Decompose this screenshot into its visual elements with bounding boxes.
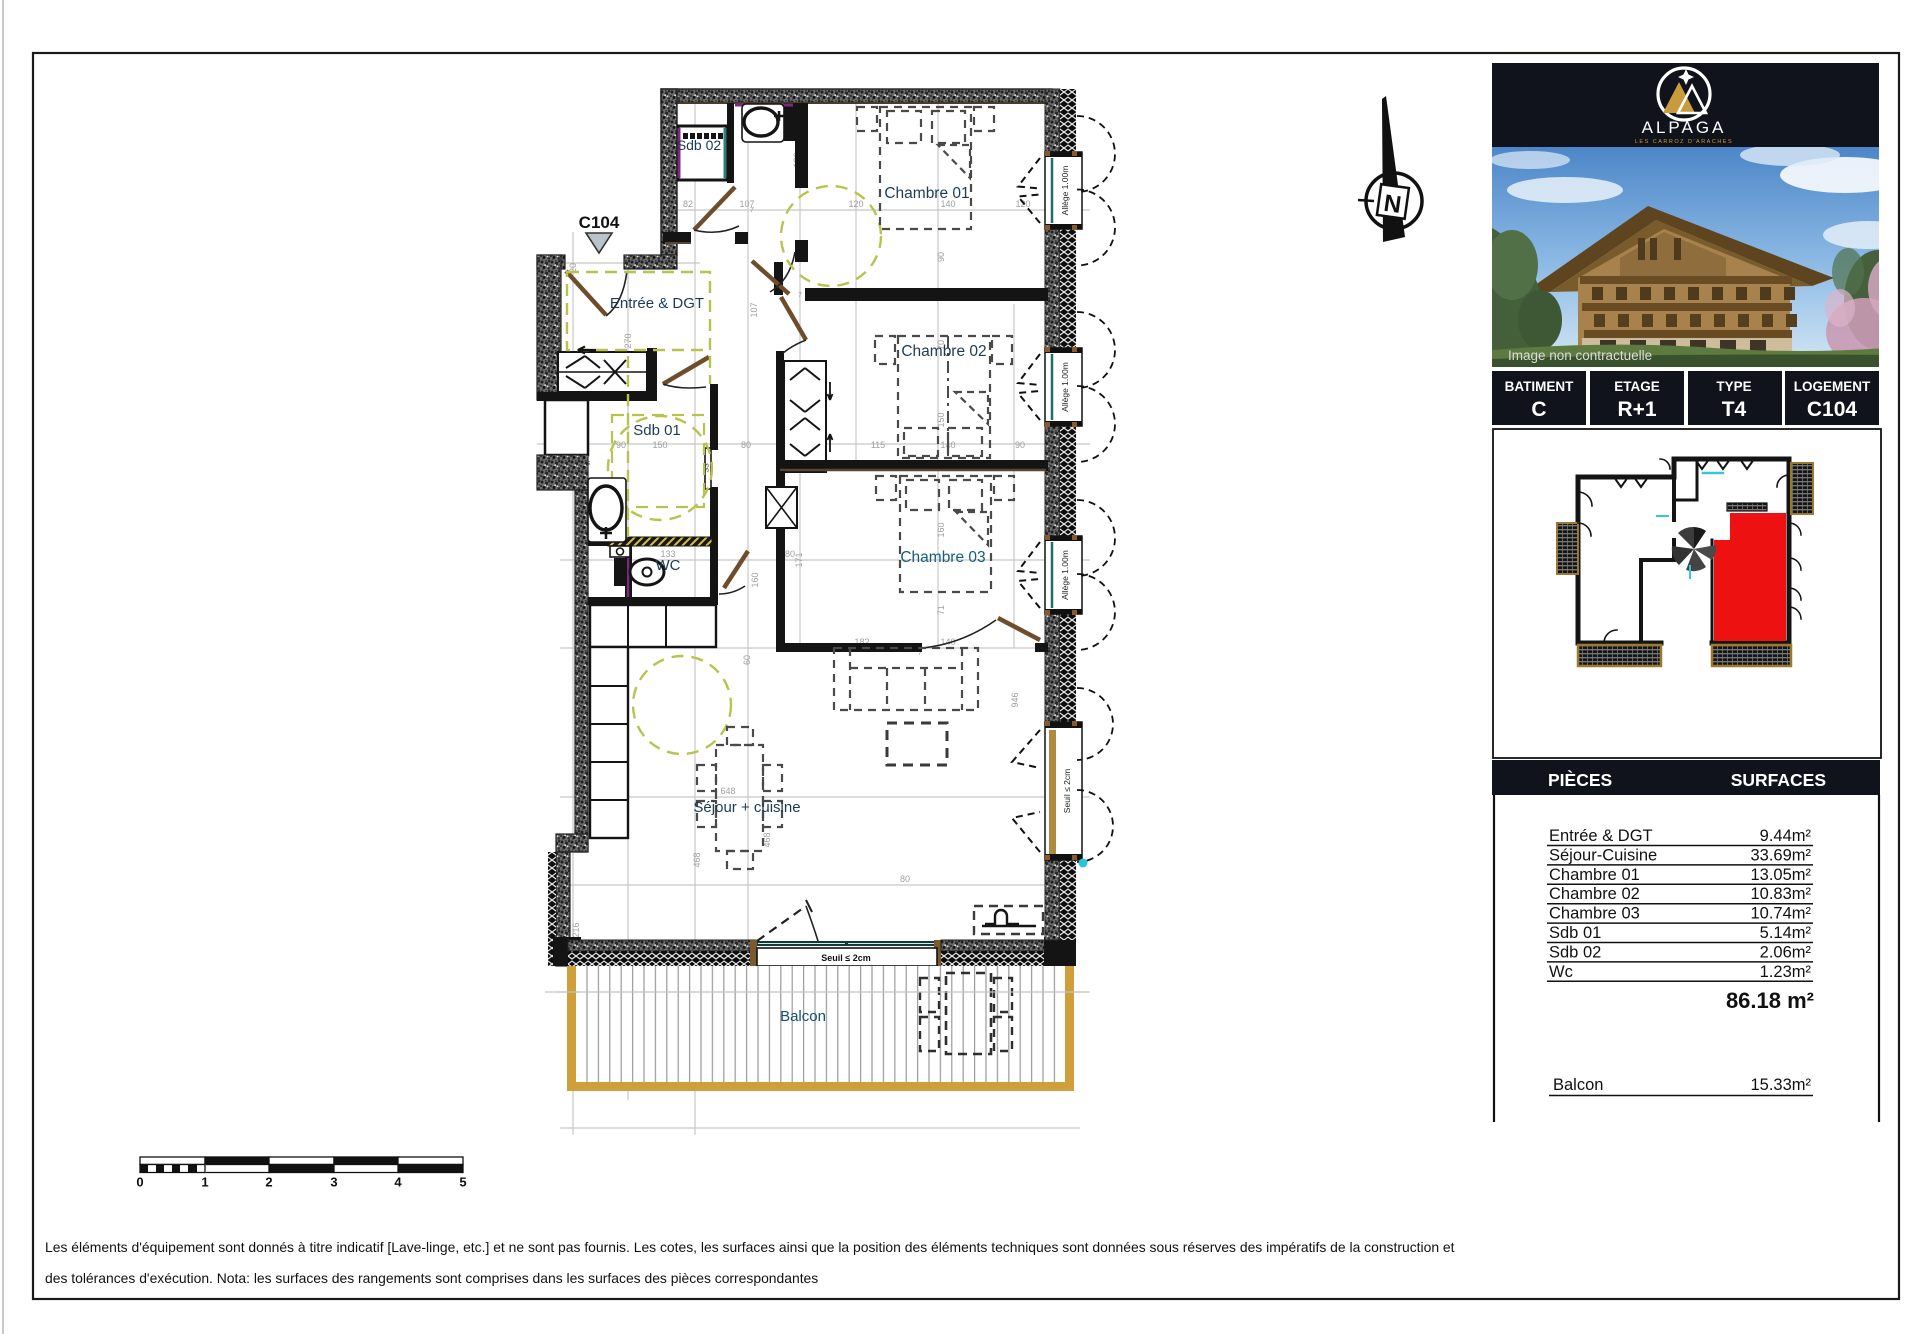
svg-text:R+1: R+1 bbox=[1617, 398, 1656, 421]
svg-text:ETAGE: ETAGE bbox=[1614, 379, 1660, 394]
svg-text:7: 7 bbox=[798, 290, 802, 299]
svg-text:90: 90 bbox=[936, 252, 946, 262]
svg-text:Chambre 02: Chambre 02 bbox=[901, 343, 986, 360]
svg-text:10.74m²: 10.74m² bbox=[1750, 905, 1811, 923]
svg-text:946: 946 bbox=[1010, 692, 1020, 707]
svg-text:LES CARROZ D'ARACHES: LES CARROZ D'ARACHES bbox=[1635, 139, 1733, 145]
svg-text:3: 3 bbox=[330, 1175, 337, 1190]
svg-text:Sdb 01: Sdb 01 bbox=[633, 422, 681, 439]
svg-text:15.33m²: 15.33m² bbox=[1750, 1076, 1811, 1094]
svg-text:4: 4 bbox=[394, 1175, 402, 1190]
svg-text:C104: C104 bbox=[579, 213, 620, 232]
svg-text:des tolérances d'exécution. No: des tolérances d'exécution. Nota: les su… bbox=[45, 1270, 818, 1286]
svg-text:150: 150 bbox=[652, 440, 667, 450]
svg-text:Entrée & DGT: Entrée & DGT bbox=[1549, 827, 1653, 845]
svg-text:468: 468 bbox=[692, 852, 702, 867]
svg-text:Wc: Wc bbox=[1549, 963, 1573, 981]
svg-text:Chambre 01: Chambre 01 bbox=[884, 185, 969, 202]
svg-text:Chambre 03: Chambre 03 bbox=[1549, 905, 1640, 923]
svg-text:Entrée & DGT: Entrée & DGT bbox=[610, 295, 704, 312]
svg-text:107: 107 bbox=[749, 302, 759, 317]
svg-text:150: 150 bbox=[936, 412, 946, 427]
svg-text:160: 160 bbox=[750, 572, 760, 587]
svg-text:10.83m²: 10.83m² bbox=[1750, 885, 1811, 903]
svg-text:Sdb 02: Sdb 02 bbox=[677, 137, 722, 153]
svg-text:PIÈCES: PIÈCES bbox=[1548, 769, 1612, 790]
svg-text:216: 216 bbox=[571, 922, 581, 937]
svg-text:2: 2 bbox=[265, 1175, 272, 1190]
svg-text:Balcon: Balcon bbox=[1553, 1076, 1603, 1094]
svg-text:82: 82 bbox=[683, 199, 693, 209]
svg-text:86.18 m²: 86.18 m² bbox=[1726, 988, 1814, 1013]
svg-text:ALPAGA: ALPAGA bbox=[1642, 118, 1727, 137]
svg-text:Allège 1.00m: Allège 1.00m bbox=[1060, 550, 1070, 600]
svg-text:115: 115 bbox=[871, 440, 885, 450]
svg-text:7: 7 bbox=[750, 205, 754, 214]
svg-text:120: 120 bbox=[848, 199, 863, 209]
svg-text:Balcon: Balcon bbox=[780, 1008, 826, 1025]
svg-text:Image non contractuelle: Image non contractuelle bbox=[1508, 348, 1652, 363]
svg-text:BATIMENT: BATIMENT bbox=[1505, 379, 1574, 394]
svg-text:Séjour-Cuisine: Séjour-Cuisine bbox=[1549, 846, 1657, 864]
svg-text:160: 160 bbox=[936, 522, 946, 537]
svg-text:SURFACES: SURFACES bbox=[1731, 770, 1826, 790]
svg-text:Allège 1.00m: Allège 1.00m bbox=[1060, 166, 1070, 216]
svg-text:90: 90 bbox=[616, 440, 626, 450]
svg-text:9.44m²: 9.44m² bbox=[1760, 827, 1812, 845]
svg-text:90: 90 bbox=[1015, 440, 1025, 450]
svg-text:2.06m²: 2.06m² bbox=[1760, 943, 1812, 961]
svg-text:71: 71 bbox=[936, 605, 946, 615]
svg-text:C: C bbox=[1531, 398, 1546, 421]
svg-text:Chambre 01: Chambre 01 bbox=[1549, 866, 1640, 884]
svg-text:5: 5 bbox=[459, 1175, 466, 1190]
svg-text:13.05m²: 13.05m² bbox=[1750, 866, 1811, 884]
svg-text:1: 1 bbox=[201, 1175, 208, 1190]
svg-text:Sdb 01: Sdb 01 bbox=[1549, 924, 1601, 942]
svg-text:LOGEMENT: LOGEMENT bbox=[1794, 379, 1871, 394]
svg-text:Allège 1.00m: Allège 1.00m bbox=[1060, 362, 1070, 412]
svg-text:1.23m²: 1.23m² bbox=[1760, 963, 1812, 981]
svg-text:Sdb 02: Sdb 02 bbox=[1549, 943, 1601, 961]
svg-text:TYPE: TYPE bbox=[1716, 379, 1751, 394]
svg-text:Seuil ≤ 2cm: Seuil ≤ 2cm bbox=[821, 953, 870, 963]
svg-text:80: 80 bbox=[900, 874, 910, 884]
svg-text:WC: WC bbox=[656, 557, 681, 574]
svg-text:C104: C104 bbox=[1807, 398, 1858, 421]
svg-text:80: 80 bbox=[741, 440, 751, 450]
svg-text:0: 0 bbox=[136, 1175, 143, 1190]
svg-text:270: 270 bbox=[623, 333, 633, 348]
svg-text:60: 60 bbox=[742, 655, 752, 665]
svg-text:171: 171 bbox=[794, 552, 804, 567]
svg-text:Chambre 02: Chambre 02 bbox=[1549, 885, 1640, 903]
svg-text:Les éléments d'équipement sont: Les éléments d'équipement sont donnés à … bbox=[45, 1239, 1455, 1255]
svg-text:Chambre 03: Chambre 03 bbox=[900, 549, 985, 566]
svg-text:5.14m²: 5.14m² bbox=[1760, 924, 1812, 942]
svg-text:33.69m²: 33.69m² bbox=[1750, 846, 1811, 864]
svg-text:T4: T4 bbox=[1722, 398, 1747, 421]
svg-text:Seuil ≤ 2cm: Seuil ≤ 2cm bbox=[1062, 769, 1072, 813]
svg-text:648: 648 bbox=[720, 786, 735, 796]
svg-text:Séjour + cuisine: Séjour + cuisine bbox=[693, 799, 800, 816]
